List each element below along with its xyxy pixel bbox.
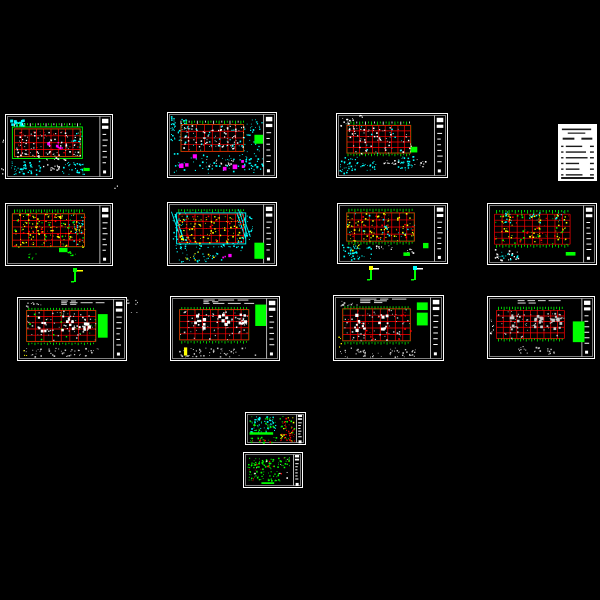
sheet-graphics [244, 453, 302, 487]
detail-sheet-r4c1[interactable] [245, 412, 306, 445]
sheet-graphics [168, 113, 276, 177]
cad-model-space[interactable] [0, 0, 600, 600]
drawing-sheet-r3c1[interactable] [17, 297, 127, 361]
stray-mark [356, 104, 364, 123]
drawing-sheet-r3c4[interactable] [487, 296, 595, 359]
sheet-graphics [6, 204, 112, 265]
drawing-sheet-r2c4[interactable] [487, 203, 597, 265]
drawing-sheet-r2c3[interactable] [337, 203, 448, 264]
section-marker-icon [366, 266, 380, 286]
sheet-graphics [168, 203, 276, 265]
stray-mark [114, 174, 118, 193]
drawing-sheet-r2c1[interactable] [5, 203, 113, 266]
drawing-sheet-r3c2[interactable] [170, 296, 280, 361]
drawing-sheet-r3c3[interactable] [333, 295, 444, 361]
section-marker-icon [410, 266, 424, 286]
sheet-graphics [488, 204, 596, 264]
stray-mark [0, 160, 4, 179]
drawing-sheet-r1c3[interactable] [336, 113, 448, 178]
drawing-sheet-r1c1[interactable] [5, 114, 113, 179]
drawing-sheet-r1c2[interactable] [167, 112, 277, 178]
stray-mark [0, 128, 4, 147]
index-table-graphics [558, 124, 597, 181]
sheet-graphics [338, 204, 447, 263]
sheet-graphics [18, 298, 126, 360]
sheet-graphics [6, 115, 112, 178]
detail-sheet-r4c2[interactable] [243, 452, 303, 488]
section-marker-icon [70, 268, 84, 288]
stray-annotation [126, 298, 138, 317]
sheet-graphics [246, 413, 305, 444]
sheet-graphics [334, 296, 443, 360]
sheet-graphics [337, 114, 447, 177]
drawing-sheet-r2c2[interactable] [167, 202, 277, 266]
drawing-index-table [558, 124, 597, 181]
sheet-graphics [488, 297, 594, 358]
sheet-graphics [171, 297, 279, 360]
